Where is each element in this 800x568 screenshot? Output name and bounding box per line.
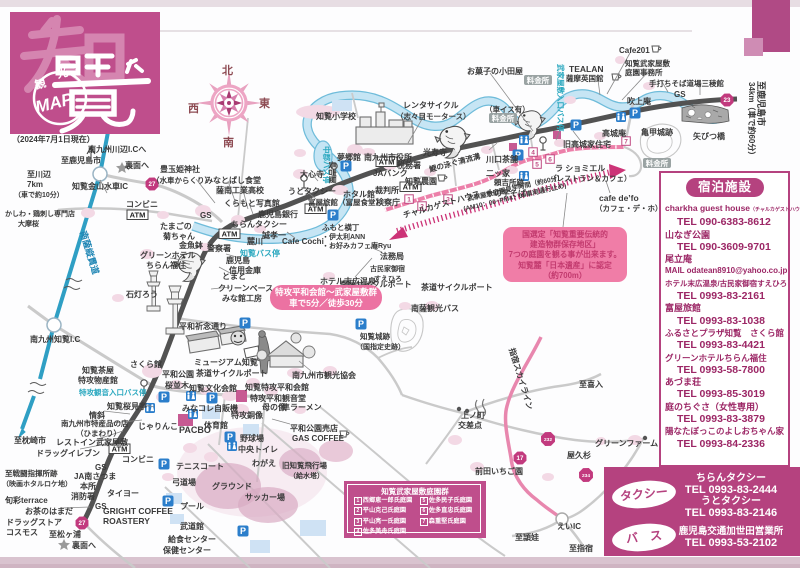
svg-text:知覧金山水車IC: 知覧金山水車IC [72, 181, 128, 191]
svg-text:かしわ・鶏刺し専門店: かしわ・鶏刺し専門店 [5, 209, 75, 218]
svg-text:本所: 本所 [79, 481, 96, 491]
svg-text:知覧農園: 知覧農園 [405, 176, 437, 186]
svg-text:裏面へ: 裏面へ [71, 540, 96, 550]
svg-text:ドラッグストア: ドラッグストア [6, 517, 62, 527]
svg-text:至松ヶ浦: 至松ヶ浦 [49, 529, 81, 539]
svg-text:吹上庵: 吹上庵 [627, 96, 652, 106]
svg-text:（車で約10分）: （車で約10分） [14, 190, 64, 199]
svg-text:裏面へ: 裏面へ [124, 160, 149, 170]
svg-text:ちらんタクシー: ちらんタクシー [231, 219, 287, 229]
svg-text:至頴娃: 至頴娃 [515, 532, 539, 542]
svg-text:知覧城跡: 知覧城跡 [360, 331, 390, 341]
svg-text:コンビニ: コンビニ [122, 454, 154, 464]
svg-text:高城庵: 高城庵 [602, 128, 627, 138]
svg-text:知覧特攻平和会館: 知覧特攻平和会館 [245, 382, 309, 392]
svg-text:至鹿児島市: 至鹿児島市 [61, 155, 101, 165]
svg-text:特攻平和観音堂: 特攻平和観音堂 [250, 393, 306, 403]
svg-text:テニスコート: テニスコート [176, 462, 224, 471]
svg-text:34km（車で約60分）: 34km（車で約60分） [747, 82, 757, 159]
svg-text:（車イス有）: （車イス有） [485, 104, 530, 114]
svg-text:長吉屋: 長吉屋 [328, 161, 338, 184]
svg-text:お菓子の小田屋: お菓子の小田屋 [467, 66, 523, 76]
svg-text:至戦闘指揮所跡: 至戦闘指揮所跡 [5, 468, 58, 478]
svg-text:たまごの: たまごの [160, 221, 192, 231]
svg-text:GRIGHT COFFEE: GRIGHT COFFEE [103, 506, 173, 516]
svg-text:旧知覧飛行場: 旧知覧飛行場 [282, 460, 327, 470]
svg-text:サッカー場: サッカー場 [245, 492, 285, 502]
svg-text:茶道サイクルポート: 茶道サイクルポート [195, 368, 268, 378]
svg-text:石灯ろう: 石灯ろう [125, 289, 158, 299]
svg-text:コンビニ: コンビニ [126, 199, 158, 209]
svg-text:亀甲城跡: 亀甲城跡 [641, 127, 673, 137]
svg-text:交差点: 交差点 [458, 420, 482, 430]
svg-text:薩摩英国館: 薩摩英国館 [566, 73, 604, 83]
svg-text:さくら館: さくら館 [130, 359, 162, 369]
svg-text:二ッ家: 二ッ家 [486, 168, 511, 178]
svg-text:鹿児島銀行: 鹿児島銀行 [258, 209, 298, 219]
svg-text:・お好みカフェ庵Ryu: ・お好みカフェ庵Ryu [322, 241, 391, 250]
svg-text:平和祈念通り: 平和祈念通り [179, 321, 227, 331]
svg-text:野球場: 野球場 [240, 433, 264, 443]
svg-text:JA南さつま: JA南さつま [74, 471, 116, 481]
svg-text:（2024年7月1日現在）: （2024年7月1日現在） [12, 134, 95, 144]
svg-text:わがえ: わがえ [252, 458, 276, 468]
svg-text:GS: GS [95, 463, 107, 472]
svg-text:至喜入: 至喜入 [579, 379, 603, 389]
svg-text:みなとばし食堂: みなとばし食堂 [205, 175, 261, 185]
svg-text:至枕崎市: 至枕崎市 [14, 435, 46, 445]
svg-text:中央トイレ: 中央トイレ [238, 444, 278, 454]
svg-text:Cafe201: Cafe201 [619, 46, 650, 55]
svg-text:光寿寺: 光寿寺 [422, 147, 447, 157]
svg-text:MAP: MAP [33, 89, 75, 117]
svg-text:みな館工房: みな館工房 [222, 293, 262, 303]
svg-text:グリーンファーム: グリーンファーム [595, 438, 658, 448]
svg-text:ちらん福住: ちらん福住 [146, 260, 186, 270]
svg-text:（ひまわり）: （ひまわり） [76, 428, 121, 438]
svg-text:至指宿: 至指宿 [569, 543, 593, 553]
svg-text:豊玉姫神社: 豊玉姫神社 [160, 164, 200, 174]
svg-text:知覧武家屋敷: 知覧武家屋敷 [625, 58, 670, 68]
svg-text:ドラッグイレブン: ドラッグイレブン [36, 448, 100, 458]
svg-text:川口茶舗: 川口茶舗 [485, 154, 518, 164]
svg-text:茶道サイクルポート: 茶道サイクルポート [420, 282, 493, 292]
svg-text:知覧茶屋: 知覧茶屋 [82, 365, 114, 375]
svg-text:金魚鉢: 金魚鉢 [178, 240, 203, 250]
svg-text:特攻観音入口バス停: 特攻観音入口バス停 [79, 387, 147, 397]
svg-text:グリーンホテル: グリーンホテル [140, 250, 196, 260]
svg-text:南九州川辺I.Cへ: 南九州川辺I.Cへ [88, 144, 146, 154]
svg-text:レンタサイクル: レンタサイクル [403, 100, 459, 110]
svg-text:くらもと写真館: くらもと写真館 [224, 198, 280, 208]
svg-text:みなコレ自販機: みなコレ自販機 [182, 403, 238, 413]
svg-text:（カフェ・デ・ホ）: （カフェ・デ・ホ） [595, 203, 663, 213]
svg-text:GS: GS [674, 90, 686, 99]
svg-text:平和公園: 平和公園 [162, 369, 194, 379]
svg-text:消防署: 消防署 [71, 491, 95, 501]
svg-text:えいIC: えいIC [557, 522, 581, 531]
svg-text:至鹿児島市: 至鹿児島市 [756, 81, 767, 126]
svg-text:菊ちゃん: 菊ちゃん [162, 231, 195, 241]
svg-text:給食センター: 給食センター [168, 534, 216, 544]
svg-text:麓川: 麓川 [246, 236, 263, 246]
svg-text:プール: プール [180, 501, 204, 511]
svg-text:旧高城家住宅: 旧高城家住宅 [563, 139, 611, 149]
svg-text:（映画ホタルロケ地）: （映画ホタルロケ地） [2, 479, 72, 488]
svg-text:武道館: 武道館 [180, 521, 204, 531]
svg-text:薩南工業高校: 薩南工業高校 [216, 185, 265, 195]
svg-text:隼ラーメン: 隼ラーメン [281, 402, 322, 412]
svg-text:TEALAN: TEALAN [569, 64, 603, 74]
svg-text:とまと: とまと [222, 272, 246, 281]
svg-text:ROASTERY: ROASTERY [103, 516, 150, 526]
svg-text:GAS COFFEE: GAS COFFEE [292, 434, 345, 443]
svg-text:大心寺: 大心寺 [300, 169, 324, 179]
svg-text:夢郷館: 夢郷館 [337, 152, 361, 162]
svg-text:弓道場: 弓道場 [172, 477, 196, 487]
svg-text:レストイン武家屋敷: レストイン武家屋敷 [56, 437, 129, 447]
svg-text:コスモス: コスモス [6, 528, 38, 537]
svg-text:古民家御宿: 古民家御宿 [370, 264, 405, 273]
svg-text:知覧文化会館: 知覧文化会館 [189, 383, 237, 393]
svg-text:至川辺: 至川辺 [27, 169, 51, 179]
svg-text:知覧バス停: 知覧バス停 [240, 248, 280, 258]
svg-text:GS: GS [200, 211, 212, 220]
svg-text:平和公園売店: 平和公園売店 [290, 423, 338, 433]
svg-text:法務局: 法務局 [380, 251, 404, 261]
svg-text:7km: 7km [27, 180, 43, 189]
svg-text:知覧桜見亭: 知覧桜見亭 [107, 401, 147, 411]
svg-text:JAバンク: JAバンク [373, 168, 408, 178]
svg-text:旬彩terrace: 旬彩terrace [4, 495, 48, 505]
svg-text:上ノ町: 上ノ町 [461, 410, 485, 420]
svg-text:指宿スカイライン: 指宿スカイライン [507, 347, 535, 411]
svg-text:南薩観光バス: 南薩観光バス [411, 303, 459, 313]
svg-text:手打ちそば道場三稜館: 手打ちそば道場三稜館 [649, 78, 724, 88]
svg-text:cafe de’fo: cafe de’fo [599, 193, 639, 203]
svg-text:桜並木: 桜並木 [165, 380, 190, 390]
svg-text:前田いちご園: 前田いちご園 [475, 466, 523, 476]
svg-text:警察署: 警察署 [206, 243, 231, 253]
svg-text:お茶のはまだ: お茶のはまだ [25, 506, 73, 516]
svg-text:特攻物産館: 特攻物産館 [78, 375, 118, 385]
svg-text:ラ ショミエル: ラ ショミエル [555, 164, 605, 173]
svg-text:グラウンド: グラウンド [212, 481, 252, 491]
svg-text:（水車からくり）: （水車からくり） [152, 175, 212, 185]
svg-text:（国指定史跡）: （国指定史跡） [356, 342, 405, 351]
svg-text:体育館: 体育館 [204, 420, 228, 430]
svg-text:じゃりんこ: じゃりんこ [138, 422, 178, 431]
svg-text:南九州市観光協会: 南九州市観光協会 [292, 370, 356, 380]
svg-text:武家屋敷入口バス停: 武家屋敷入口バス停 [556, 64, 566, 132]
svg-text:・伊太利ANN: ・伊太利ANN [322, 232, 365, 241]
svg-text:南九州知覧I.C: 南九州知覧I.C [30, 334, 80, 344]
svg-text:Cafe Cochi: Cafe Cochi [282, 237, 324, 246]
svg-text:タイヨー: タイヨー [107, 488, 139, 498]
svg-text:庭園事務所: 庭園事務所 [625, 67, 663, 77]
svg-text:（給水塔）: （給水塔） [289, 471, 324, 480]
svg-text:裁判所: 裁判所 [375, 185, 399, 195]
svg-text:クリーンベース: クリーンベース [218, 283, 273, 293]
svg-text:ふもと横丁: ふもと横丁 [322, 222, 360, 232]
svg-text:（志々目モータース）: （志々目モータース） [396, 111, 471, 121]
svg-text:南九州市特産品の店: 南九州市特産品の店 [61, 418, 129, 428]
svg-text:屋久杉: 屋久杉 [567, 450, 591, 460]
svg-text:保健センター: 保健センター [162, 545, 211, 555]
svg-text:矢びつ橋: 矢びつ橋 [693, 131, 726, 141]
svg-text:知覧小学校: 知覧小学校 [316, 111, 357, 121]
svg-text:大摩桜: 大摩桜 [18, 219, 39, 228]
svg-text:ミュージアム知覧: ミュージアム知覧 [194, 357, 258, 367]
svg-text:うとタクシー: うとタクシー [288, 186, 336, 196]
svg-text:富屋旅館（富屋食堂）: 富屋旅館（富屋食堂） [308, 197, 383, 207]
svg-text:南薩縦貫道: 南薩縦貫道 [78, 229, 102, 275]
